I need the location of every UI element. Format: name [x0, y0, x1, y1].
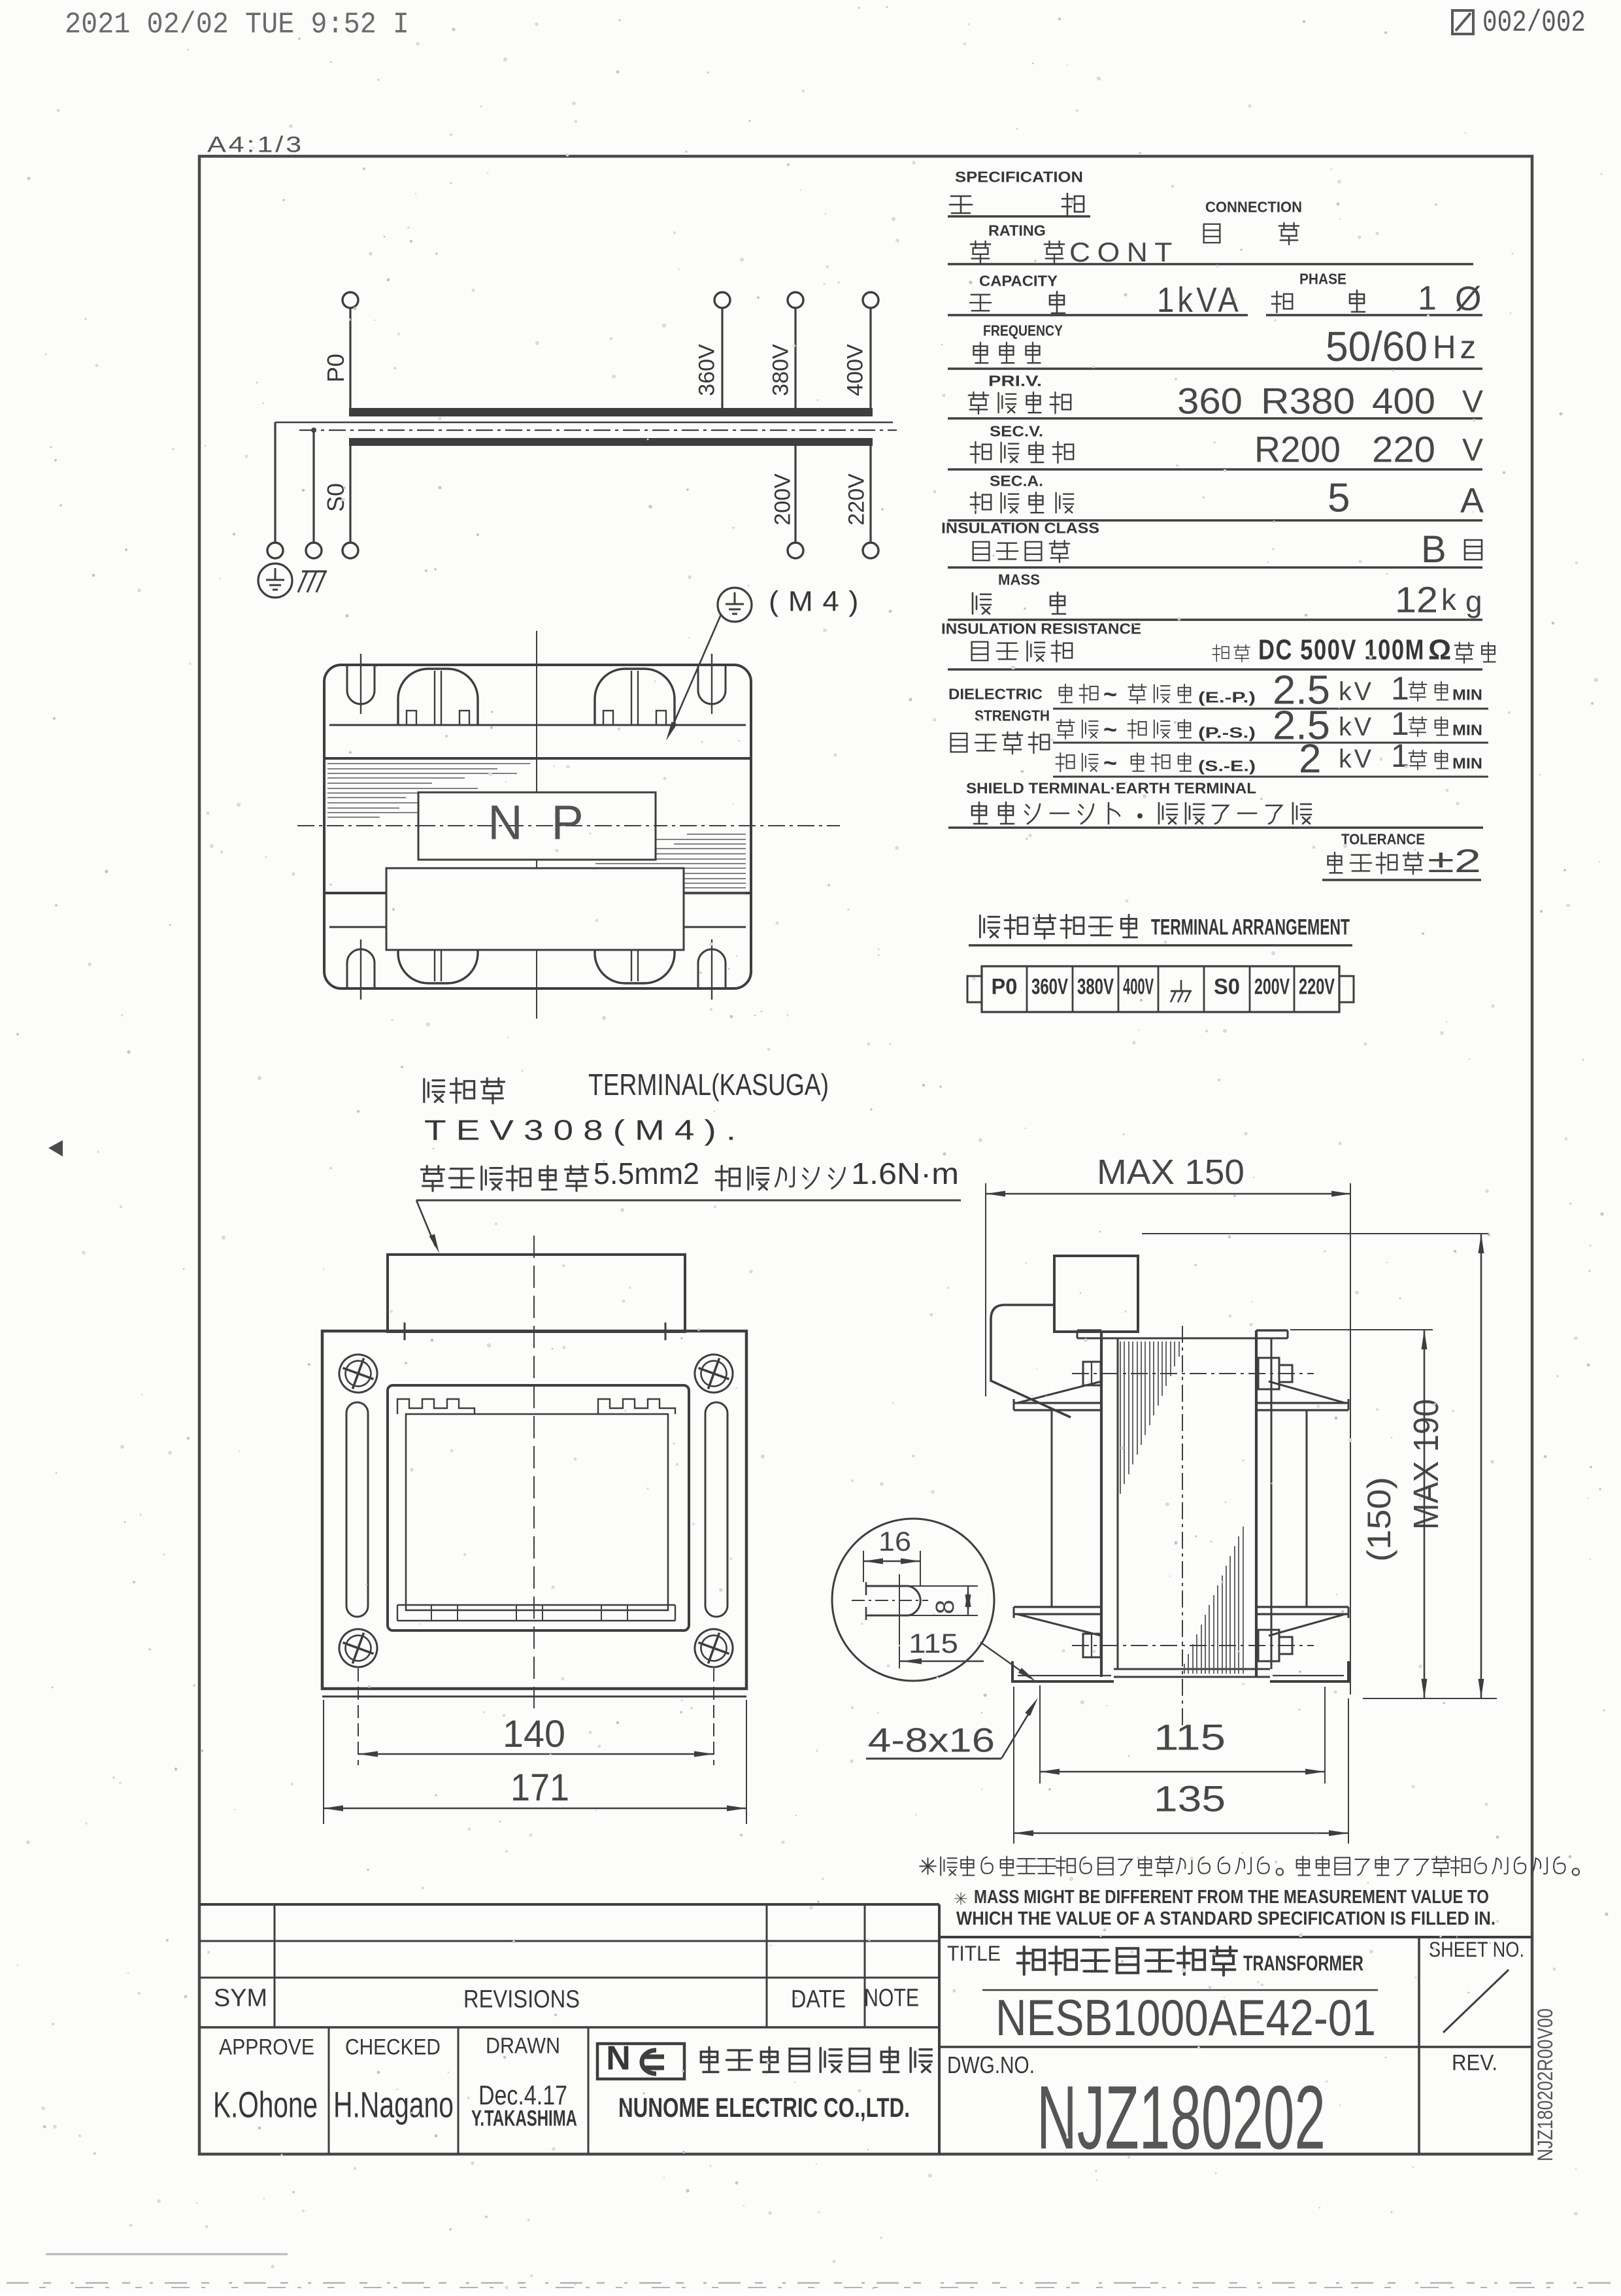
svg-text:1: 1 — [1391, 705, 1409, 742]
svg-text:MIN: MIN — [1452, 722, 1482, 739]
svg-text:NJZ180202: NJZ180202 — [1037, 2067, 1326, 2168]
svg-text:2: 2 — [1299, 737, 1321, 782]
svg-text:Y.TAKASHIMA: Y.TAKASHIMA — [471, 2106, 577, 2131]
svg-text:±2: ±2 — [1428, 843, 1481, 879]
svg-text:WHICH THE VALUE OF A STANDARD: WHICH THE VALUE OF A STANDARD SPECIFICAT… — [956, 1908, 1496, 1929]
svg-text:RATING: RATING — [988, 222, 1046, 239]
svg-text:kV: kV — [1339, 713, 1374, 741]
svg-text:REVISIONS: REVISIONS — [463, 1985, 580, 2013]
svg-text:CONNECTION: CONNECTION — [1205, 199, 1302, 216]
svg-text:171: 171 — [510, 1766, 569, 1809]
svg-text:Ω: Ω — [1428, 634, 1451, 666]
svg-text:FREQUENCY: FREQUENCY — [983, 322, 1063, 339]
svg-text:50/60: 50/60 — [1326, 323, 1428, 370]
svg-text:360V: 360V — [1031, 975, 1068, 1000]
svg-text:TRANSFORMER: TRANSFORMER — [1243, 1951, 1363, 1975]
svg-text:220V: 220V — [1299, 975, 1335, 1000]
svg-text:Ø: Ø — [1455, 280, 1481, 318]
svg-text:INSULATION RESISTANCE: INSULATION RESISTANCE — [941, 620, 1141, 637]
svg-text:MAX 190: MAX 190 — [1407, 1399, 1446, 1530]
svg-text:2021 02/02 TUE 9:52 I: 2021 02/02 TUE 9:52 I — [65, 8, 409, 41]
svg-text:(P.-S.): (P.-S.) — [1198, 724, 1256, 741]
svg-text:~: ~ — [1103, 681, 1117, 707]
svg-text:115: 115 — [1154, 1716, 1226, 1757]
svg-text:MAX 150: MAX 150 — [1097, 1153, 1245, 1192]
svg-text:360: 360 — [1177, 380, 1243, 421]
svg-text:~: ~ — [1103, 749, 1117, 776]
svg-text:DC 500V 100M: DC 500V 100M — [1258, 634, 1425, 666]
svg-text:(150): (150) — [1361, 1477, 1397, 1562]
svg-text:MASS MIGHT BE DIFFERENT FROM T: MASS MIGHT BE DIFFERENT FROM THE MEASURE… — [974, 1887, 1489, 1908]
svg-text:DRAWN: DRAWN — [486, 2034, 560, 2059]
svg-text:P0: P0 — [992, 975, 1018, 1000]
svg-text:PHASE: PHASE — [1299, 271, 1346, 288]
svg-text:(E.-P.): (E.-P.) — [1198, 689, 1256, 706]
svg-text:A4:1/3: A4:1/3 — [207, 133, 304, 158]
svg-text:R380: R380 — [1261, 380, 1355, 421]
svg-text:P0: P0 — [322, 354, 349, 382]
svg-text:1kVA: 1kVA — [1157, 280, 1242, 320]
svg-text:(S.-E.): (S.-E.) — [1198, 758, 1256, 775]
svg-text:220V: 220V — [844, 473, 869, 526]
svg-text:380V: 380V — [769, 344, 794, 396]
svg-text:APPROVE: APPROVE — [219, 2035, 314, 2060]
svg-text:1: 1 — [1391, 670, 1409, 707]
svg-text:TOLERANCE: TOLERANCE — [1341, 831, 1425, 848]
svg-text:V: V — [1462, 385, 1483, 420]
svg-text:5.5mm2: 5.5mm2 — [593, 1156, 699, 1190]
svg-text:V: V — [1462, 433, 1483, 468]
svg-text:N: N — [488, 795, 522, 849]
svg-text:DATE: DATE — [791, 1985, 846, 2013]
svg-text:12: 12 — [1395, 579, 1438, 620]
svg-text:1.6N·m: 1.6N·m — [851, 1156, 959, 1190]
svg-text:B: B — [1421, 528, 1446, 571]
svg-text:SEC.V.: SEC.V. — [990, 423, 1043, 440]
svg-text:g: g — [1465, 584, 1482, 618]
svg-text:SYM: SYM — [214, 1984, 267, 2012]
svg-text:115: 115 — [909, 1628, 958, 1659]
svg-text:NJZ180202R00V00: NJZ180202R00V00 — [1533, 2008, 1557, 2161]
svg-text:MIN: MIN — [1452, 686, 1482, 703]
svg-text:400: 400 — [1372, 380, 1435, 421]
svg-text:400V: 400V — [843, 344, 868, 396]
svg-text:SEC.A.: SEC.A. — [990, 473, 1043, 490]
svg-text:SHEET NO.: SHEET NO. — [1429, 1938, 1524, 1961]
svg-text:k: k — [1441, 582, 1457, 616]
svg-text:135: 135 — [1154, 1778, 1226, 1819]
svg-text:INSULATION CLASS: INSULATION CLASS — [941, 520, 1099, 537]
svg-text:MIN: MIN — [1452, 755, 1482, 772]
svg-text:kV: kV — [1339, 745, 1374, 773]
svg-text:SPECIFICATION: SPECIFICATION — [955, 169, 1083, 186]
svg-text:002/002: 002/002 — [1482, 6, 1586, 40]
svg-text:1: 1 — [1418, 279, 1437, 317]
svg-text:P: P — [551, 795, 583, 849]
svg-text:REV.: REV. — [1452, 2051, 1497, 2076]
svg-text:400V: 400V — [1123, 975, 1154, 1000]
svg-text:H.Nagano: H.Nagano — [333, 2084, 454, 2125]
svg-text:A: A — [1460, 481, 1484, 520]
svg-text:NESB1000AE42-01: NESB1000AE42-01 — [995, 1989, 1376, 2046]
svg-text:TEV308(M4).: TEV308(M4). — [424, 1115, 746, 1147]
svg-text:MASS: MASS — [998, 571, 1040, 588]
svg-text:NOTE: NOTE — [864, 1984, 919, 2012]
svg-text:SHIELD TERMINAL·EARTH TERMINAL: SHIELD TERMINAL·EARTH TERMINAL — [966, 780, 1256, 797]
svg-text:R200: R200 — [1254, 428, 1341, 469]
svg-text:TITLE: TITLE — [947, 1942, 1001, 1965]
svg-text:K.Ohone: K.Ohone — [213, 2084, 318, 2125]
svg-text:PRI.V.: PRI.V. — [988, 373, 1042, 390]
svg-text:CONT: CONT — [1069, 237, 1179, 267]
svg-text:TERMINAL ARRANGEMENT: TERMINAL ARRANGEMENT — [1151, 915, 1350, 940]
svg-text:DIELECTRIC: DIELECTRIC — [948, 686, 1043, 703]
svg-text:5: 5 — [1328, 476, 1350, 521]
svg-text:220: 220 — [1372, 428, 1435, 469]
svg-text:1: 1 — [1391, 737, 1409, 774]
svg-text:360V: 360V — [695, 344, 720, 396]
svg-text:N: N — [606, 2039, 631, 2077]
svg-text:kV: kV — [1339, 677, 1374, 706]
svg-text:DWG.NO.: DWG.NO. — [947, 2051, 1035, 2078]
svg-text:~: ~ — [1103, 716, 1117, 743]
svg-text:140: 140 — [503, 1713, 565, 1755]
svg-text:(M4): (M4) — [769, 586, 868, 618]
svg-text:Hz: Hz — [1433, 329, 1480, 365]
svg-text:STRENGTH: STRENGTH — [975, 707, 1050, 724]
svg-text:S0: S0 — [1214, 975, 1240, 1000]
svg-text:4-8x16: 4-8x16 — [868, 1721, 995, 1759]
svg-text:200V: 200V — [1254, 975, 1290, 1000]
svg-text:TERMINAL(KASUGA): TERMINAL(KASUGA) — [588, 1068, 829, 1102]
svg-text:8: 8 — [931, 1600, 960, 1614]
svg-text:16: 16 — [878, 1526, 911, 1557]
svg-text:380V: 380V — [1077, 975, 1114, 1000]
svg-text:200V: 200V — [771, 473, 795, 526]
svg-text:CHECKED: CHECKED — [345, 2035, 441, 2060]
svg-text:CAPACITY: CAPACITY — [979, 273, 1058, 290]
svg-text:NUNOME ELECTRIC CO.,LTD.: NUNOME ELECTRIC CO.,LTD. — [618, 2092, 910, 2123]
